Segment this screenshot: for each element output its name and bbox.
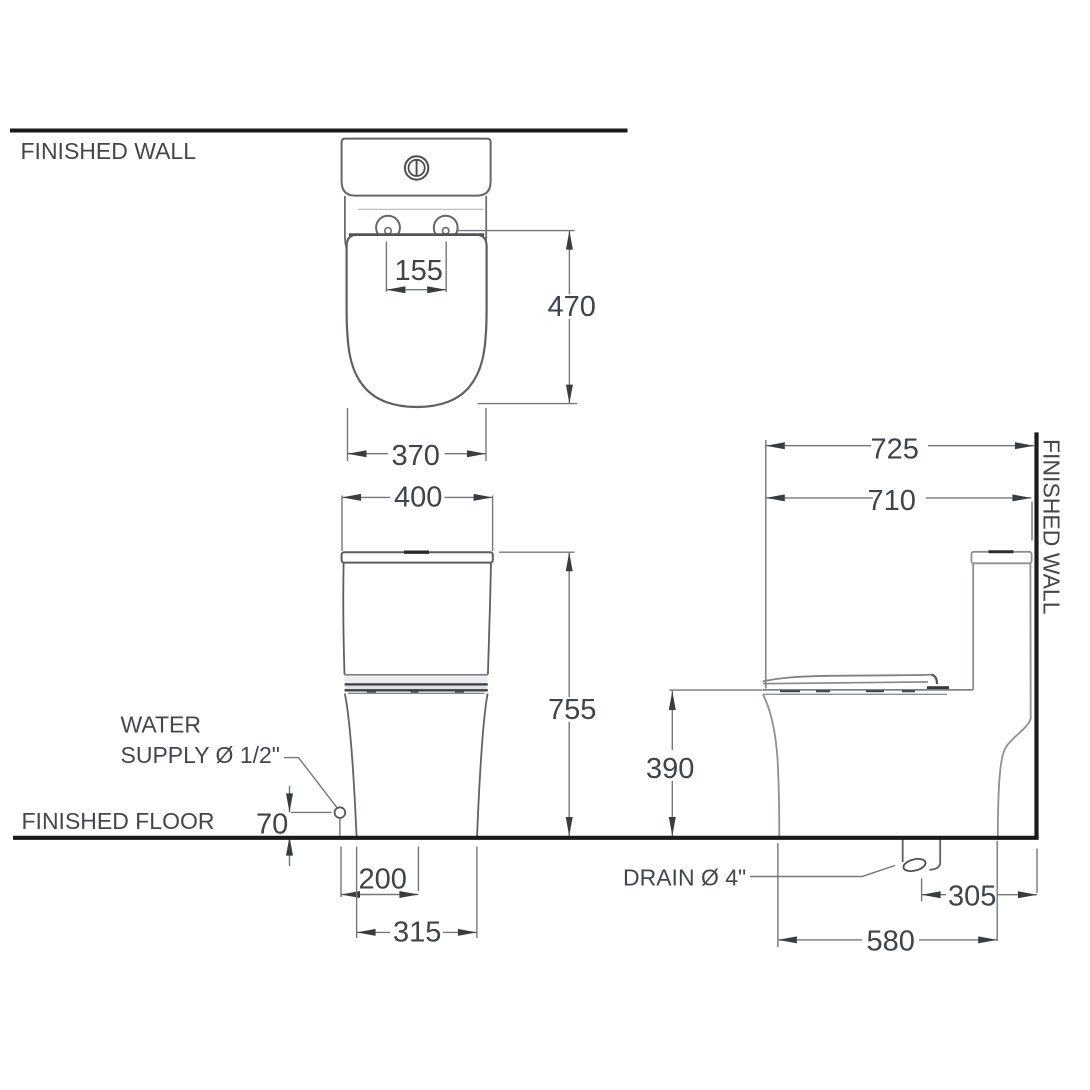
svg-text:755: 755 xyxy=(548,694,596,726)
svg-text:390: 390 xyxy=(646,753,694,785)
svg-text:370: 370 xyxy=(392,440,440,472)
svg-text:FINISHED WALL: FINISHED WALL xyxy=(21,138,197,164)
svg-text:WATER: WATER xyxy=(121,712,202,738)
svg-text:470: 470 xyxy=(548,291,596,323)
svg-text:200: 200 xyxy=(359,864,407,896)
svg-text:FINISHED FLOOR: FINISHED FLOOR xyxy=(22,808,215,834)
svg-text:400: 400 xyxy=(394,482,442,514)
svg-text:FINISHED WALL: FINISHED WALL xyxy=(1039,439,1065,615)
svg-text:SUPPLY Ø 1/2": SUPPLY Ø 1/2" xyxy=(121,742,280,768)
svg-text:710: 710 xyxy=(868,485,916,517)
svg-text:305: 305 xyxy=(948,881,996,913)
svg-text:315: 315 xyxy=(393,917,441,949)
svg-text:580: 580 xyxy=(867,926,915,958)
svg-text:725: 725 xyxy=(871,433,919,465)
svg-text:155: 155 xyxy=(395,255,443,287)
svg-text:DRAIN Ø 4": DRAIN Ø 4" xyxy=(623,865,746,891)
